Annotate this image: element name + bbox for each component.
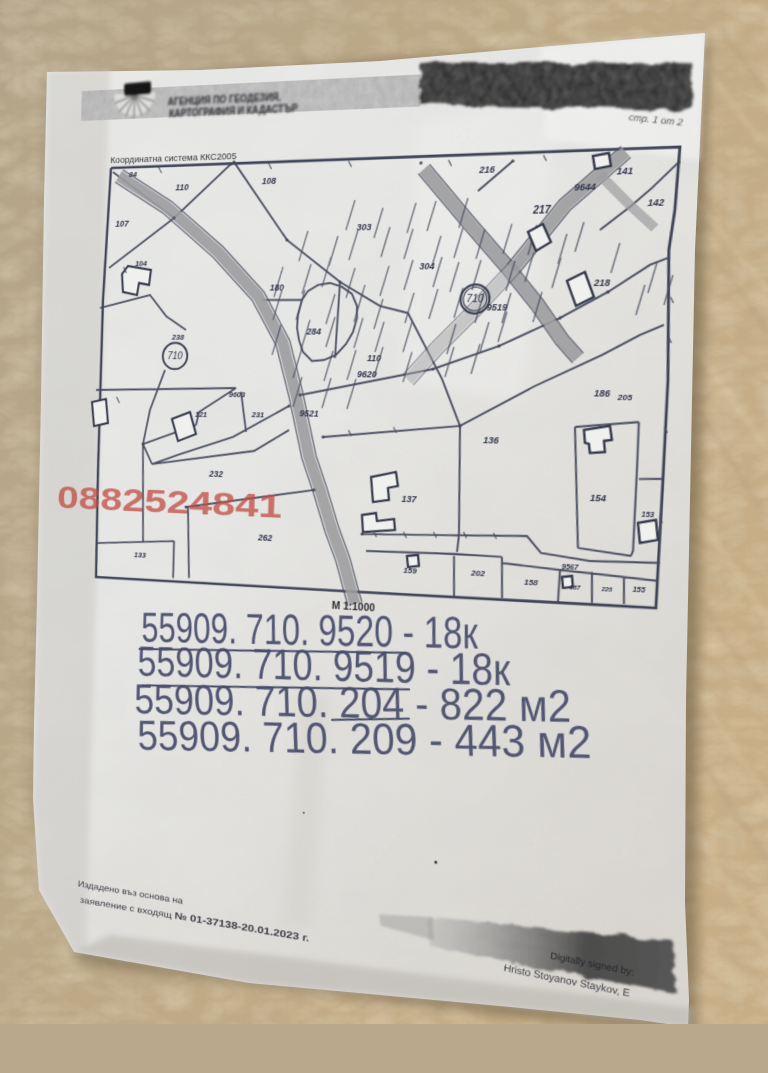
svg-text:9620: 9620 (357, 369, 378, 379)
svg-text:9521: 9521 (299, 408, 319, 418)
svg-text:9519: 9519 (486, 302, 508, 312)
svg-text:303: 303 (356, 222, 372, 232)
svg-text:225: 225 (600, 586, 613, 594)
svg-text:84: 84 (129, 169, 137, 179)
svg-text:710: 710 (466, 293, 484, 304)
svg-text:218: 218 (592, 278, 610, 289)
svg-text:157: 157 (569, 584, 581, 592)
svg-text:9567: 9567 (562, 563, 579, 572)
svg-text:186: 186 (594, 388, 611, 399)
svg-text:154: 154 (590, 493, 607, 504)
svg-text:304: 304 (419, 261, 435, 271)
svg-text:217: 217 (532, 204, 552, 216)
svg-text:9644: 9644 (574, 182, 597, 193)
svg-text:158: 158 (524, 576, 540, 587)
svg-text:155: 155 (632, 586, 646, 595)
svg-text:9603: 9603 (229, 389, 246, 399)
svg-text:136: 136 (483, 435, 499, 446)
svg-text:262: 262 (257, 533, 273, 543)
svg-text:110: 110 (367, 353, 382, 363)
svg-text:710: 710 (167, 350, 182, 361)
svg-text:107: 107 (115, 219, 129, 229)
svg-text:153: 153 (641, 511, 655, 520)
svg-text:180: 180 (270, 282, 285, 292)
svg-text:205: 205 (616, 392, 633, 403)
svg-text:0882524841: 0882524841 (57, 479, 283, 526)
svg-text:заявление с входящ № 01-37138-: заявление с входящ № 01-37138-20.01.2023… (80, 894, 310, 943)
svg-text:55909. 710. 209 - 443 м2: 55909. 710. 209 - 443 м2 (137, 713, 593, 768)
svg-text:110: 110 (175, 182, 189, 192)
svg-text:стр. 1 от 2: стр. 1 от 2 (628, 112, 685, 128)
svg-text:159: 159 (403, 565, 418, 576)
svg-text:121: 121 (195, 409, 208, 419)
svg-text:141: 141 (616, 166, 633, 177)
svg-text:284: 284 (306, 326, 322, 336)
svg-text:108: 108 (262, 176, 277, 186)
svg-text:142: 142 (647, 197, 665, 208)
svg-text:232: 232 (208, 469, 224, 479)
svg-text:137: 137 (401, 494, 417, 505)
svg-text:104: 104 (135, 258, 147, 268)
svg-text:231: 231 (251, 410, 265, 420)
svg-text:238: 238 (171, 332, 185, 342)
svg-text:133: 133 (134, 550, 146, 560)
svg-text:216: 216 (478, 164, 496, 175)
svg-text:202: 202 (470, 568, 485, 579)
